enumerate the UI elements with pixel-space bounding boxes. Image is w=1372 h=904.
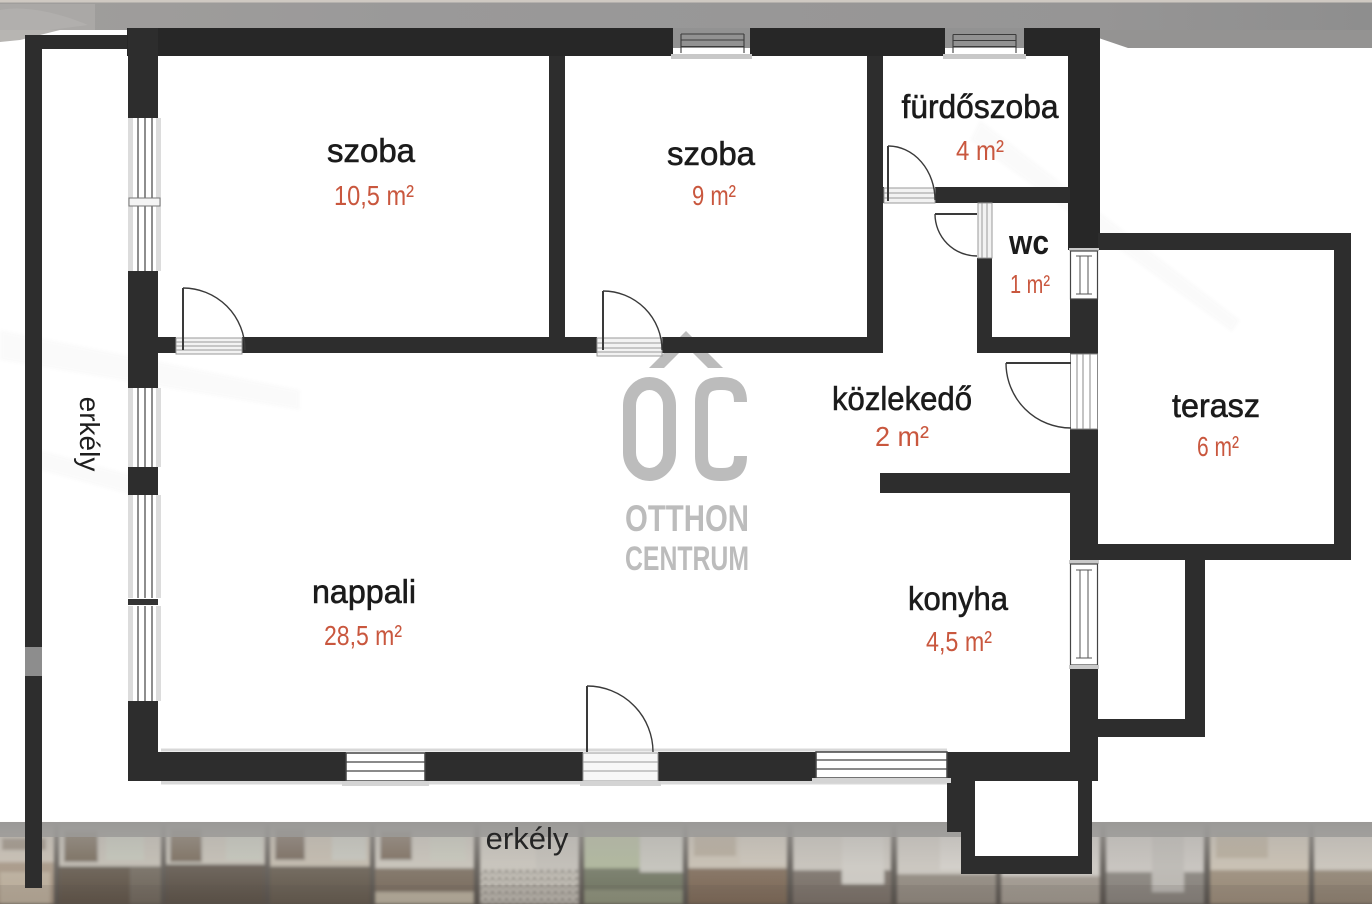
svg-text:6 m²: 6 m² [1197,431,1239,462]
svg-text:közlekedő: közlekedő [832,380,972,417]
svg-text:4,5 m²: 4,5 m² [926,626,992,657]
svg-text:szoba: szoba [327,132,416,169]
svg-text:CENTRUM: CENTRUM [625,540,749,578]
svg-text:szoba: szoba [667,135,756,172]
svg-text:9 m²: 9 m² [692,180,736,211]
svg-text:10,5 m²: 10,5 m² [334,180,414,211]
svg-text:fürdőszoba: fürdőszoba [902,88,1060,125]
svg-text:28,5 m²: 28,5 m² [324,620,402,651]
svg-text:konyha: konyha [908,580,1009,617]
svg-text:2 m²: 2 m² [875,421,929,452]
svg-text:erkély: erkély [486,821,569,856]
svg-text:wc: wc [1008,224,1049,262]
svg-text:terasz: terasz [1172,387,1260,424]
svg-text:1 m²: 1 m² [1010,269,1050,299]
svg-text:OTTHON: OTTHON [625,498,749,539]
svg-text:nappali: nappali [312,573,416,610]
svg-text:erkély: erkély [74,397,105,472]
svg-text:4 m²: 4 m² [956,135,1004,166]
